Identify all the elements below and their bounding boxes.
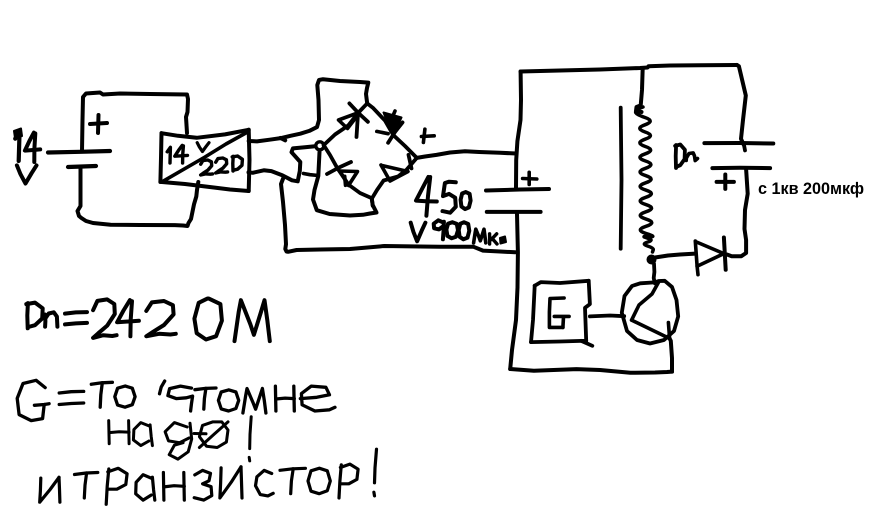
svg-text:с 1кв 200мкф: с 1кв 200мкф (758, 180, 864, 198)
